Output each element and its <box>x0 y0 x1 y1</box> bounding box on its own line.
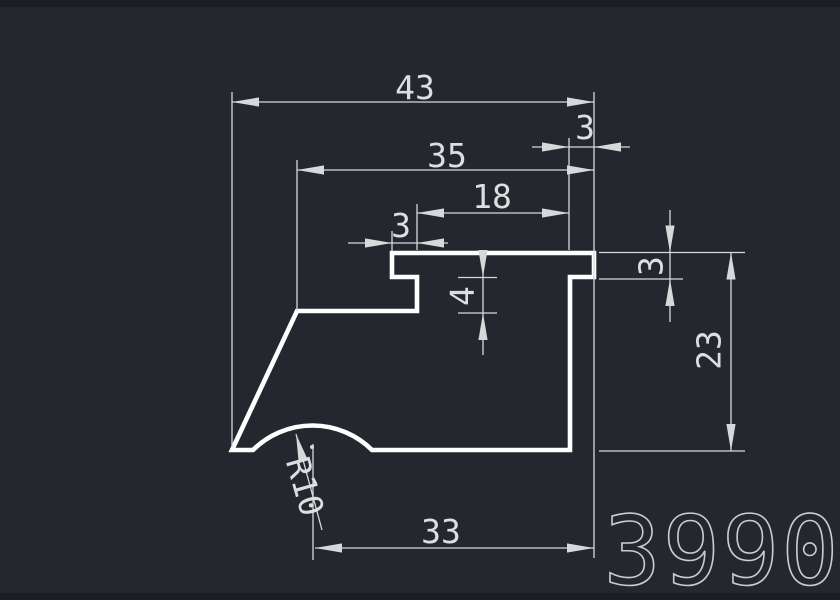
dim-body-height-label: 23 <box>690 330 729 370</box>
dim-left-notch-label: 3 <box>391 206 411 245</box>
dim-bottom-width-label: 33 <box>421 512 461 551</box>
top-edge-strip <box>0 0 840 7</box>
dim-flange-thickness-label: 3 <box>632 256 671 276</box>
dim-upper-width-label: 35 <box>427 136 467 175</box>
dim-overall-width-label: 43 <box>395 68 435 107</box>
dim-right-overhang-label: 3 <box>575 108 595 147</box>
part-number-label: 3990 <box>604 497 840 600</box>
arc-defpoint-dot <box>310 445 314 449</box>
drawing-canvas[interactable]: 43 35 3 18 3 4 3 23 33 R10 3990 <box>0 0 840 600</box>
dim-notch-span-label: 18 <box>472 177 512 216</box>
dim-step-depth-label: 4 <box>443 286 482 306</box>
cad-viewport: 43 35 3 18 3 4 3 23 33 R10 3990 <box>0 0 840 600</box>
